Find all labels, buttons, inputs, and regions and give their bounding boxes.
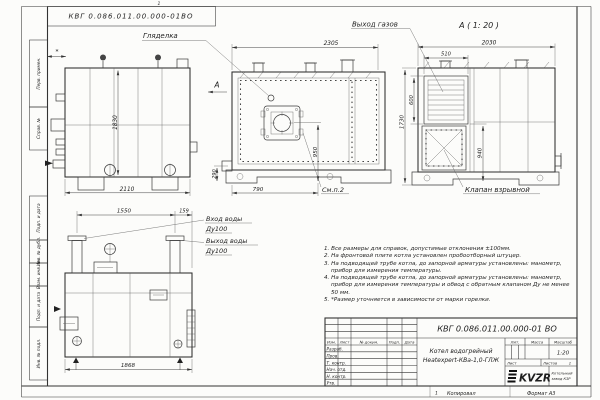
copied-label: Копировал (447, 391, 476, 397)
logo-coil-icon (508, 371, 518, 382)
water-inlet-dn: Ду100 (205, 225, 227, 233)
gas-outlet-label: Выход газов (352, 21, 398, 29)
section-title: А ( 1: 20 ) (458, 21, 499, 30)
row-tkontr: Т. контр. (327, 360, 346, 365)
product-name-line2: Heatexpert-КВа-1,0-ГЛЖ (423, 357, 500, 364)
dim-rear-width: 1868 (121, 363, 136, 369)
col-list: Лист (339, 339, 350, 344)
format-label: Формат А3 (527, 391, 555, 397)
water-inlet-label: Вход воды (206, 215, 242, 223)
note-item: 4. На подводящей трубе котла, до запорно… (324, 275, 575, 297)
see-note-label: См.п.2 (322, 186, 344, 194)
view-side: 1830 2110 * А (45, 49, 227, 197)
water-outlet-label: Выход воды (206, 237, 247, 245)
row-prov: Пров. (327, 354, 339, 359)
margin-label-podp-data-2: Подп. и дата (36, 292, 42, 322)
dim-burner-offset: 790 (253, 187, 264, 193)
sheet-label: Лист (506, 360, 517, 365)
row-utv: Утв. (327, 381, 336, 386)
notes-list: 1. Все размеры для справок, допустимые о… (324, 246, 575, 304)
margin-label-podp-data-1: Подп. и дата (36, 203, 42, 233)
col-izm: Изм. (327, 339, 336, 344)
dim-vent-height: 600 (409, 94, 415, 105)
dim-valve-height: 940 (477, 147, 483, 158)
mass-label: Масса (531, 339, 544, 344)
margin-label-perv-primen: Перв. примен. (36, 57, 42, 89)
sheets-label: Листов (542, 360, 558, 365)
dim-vent-width: 510 (441, 52, 452, 58)
margin-label-sprav-no: Справ. № (36, 118, 42, 139)
col-doc: № докум. (359, 339, 379, 344)
logo-caption-line1: Котельный (552, 372, 574, 376)
note-item: 1. Все размеры для справок, допустимые о… (324, 246, 575, 253)
margin-label-inv-podl: Инв. № подл. (36, 339, 42, 369)
sheets-value: 1 (569, 360, 571, 365)
zone-mark-top: 1 (158, 1, 161, 7)
view-front: Гляделка 2305 950 790 290 См.п.2 (142, 32, 391, 196)
dim-section-width: 2030 (482, 41, 497, 47)
dim-side-star: * (56, 49, 59, 56)
dim-rear-offset: 159 (179, 209, 189, 215)
view-section-a: А ( 1: 20 ) Выход газов 1730 2030 (351, 21, 561, 195)
row-nachotd: Нач. отд. (327, 367, 347, 372)
dim-burner-height: 950 (313, 146, 319, 157)
top-designation: КВГ 0.086.011.00.000-01ВО (69, 13, 194, 21)
section-arrow-label: А (213, 81, 219, 90)
gas-outlet-louver (424, 76, 468, 124)
lit-label: Лит. (510, 339, 520, 344)
col-date: Дата (404, 339, 416, 344)
explosion-valve-panel (422, 126, 466, 170)
col-sign: Подп. (389, 339, 401, 344)
logo-caption-line2: завод КЗР (552, 377, 572, 381)
product-name-line1: Котел водогрейный (430, 348, 493, 355)
title-block: КВГ 0.086.011.00.000-01 ВО Изм. Лист № д… (325, 318, 577, 386)
dim-side-height: 1830 (113, 115, 119, 130)
note-item: 2. На фронтовой плите котла установлен п… (324, 253, 575, 260)
drawing-sheet: КВГ 0.086.011.00.000-01ВО 1 1 Копировал … (0, 0, 600, 400)
dim-front-base: 290 (212, 169, 218, 179)
note-item: 5. *Размер уточняется в зависимости от м… (324, 297, 575, 304)
dim-section-height: 1730 (400, 114, 406, 129)
margin-label-vzam-inv: Взам. инв. № (36, 259, 42, 289)
explosion-valve-label: Клапан взрывной (465, 186, 530, 194)
logo-text: KVZR (519, 373, 551, 385)
drawing-canvas: КВГ 0.086.011.00.000-01ВО 1 1 Копировал … (0, 0, 600, 400)
zone-mark-bottom: 1 (435, 391, 438, 397)
dim-side-width: 2110 (120, 187, 135, 193)
margin-column: Перв. примен. Справ. № Подп. и дата Инв.… (30, 40, 48, 380)
row-razrab: Разраб. (327, 347, 343, 352)
titleblock-designation: КВГ 0.086.011.00.000-01 ВО (437, 324, 557, 334)
dim-rear-span: 1550 (117, 209, 132, 215)
burner-plate (261, 106, 303, 140)
dim-front-width: 2305 (324, 41, 339, 47)
sheet-frame: КВГ 0.086.011.00.000-01ВО 1 1 Копировал … (22, 1, 592, 397)
scale-label: Масштаб (554, 339, 573, 344)
note-item: 3. На подводящей трубе котла, до запорно… (324, 261, 575, 276)
sight-glass-label: Гляделка (143, 32, 178, 40)
view-rear: 1550 159 1868 Вход воды Ду100 Выход воды… (54, 209, 258, 374)
row-nkontr: Н. контр. (327, 374, 347, 379)
scale-value: 1:20 (557, 351, 570, 357)
water-outlet-dn: Ду100 (205, 247, 227, 255)
